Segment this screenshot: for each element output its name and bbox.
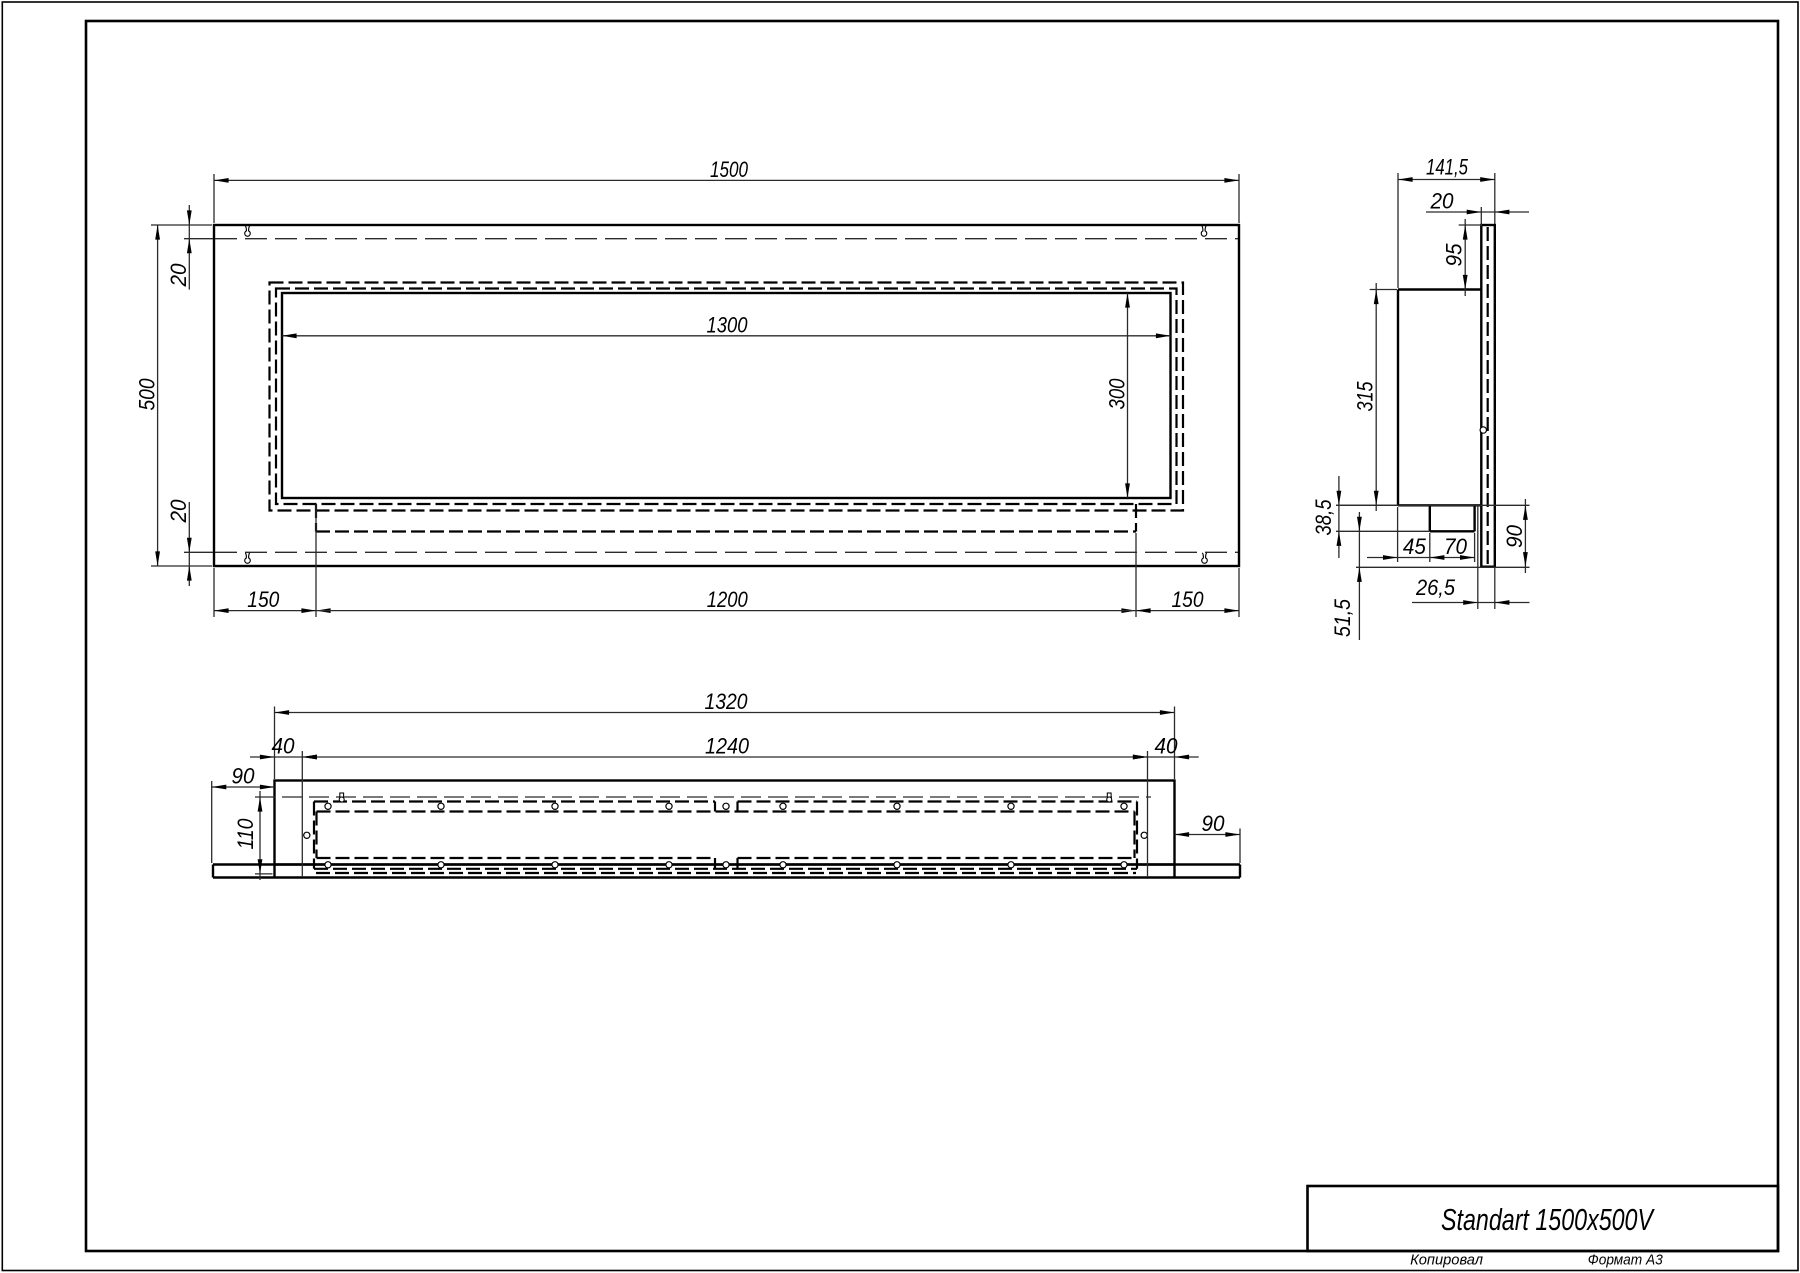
svg-text:1200: 1200 (707, 587, 749, 612)
svg-text:38,5: 38,5 (1311, 499, 1336, 536)
svg-text:Формат А3: Формат А3 (1588, 1253, 1663, 1269)
svg-text:150: 150 (1172, 587, 1205, 612)
svg-text:500: 500 (134, 378, 159, 411)
svg-text:141,5: 141,5 (1426, 155, 1469, 180)
svg-text:110: 110 (233, 818, 258, 850)
svg-text:45: 45 (1403, 534, 1427, 559)
svg-text:Копировал: Копировал (1410, 1253, 1483, 1269)
svg-text:95: 95 (1442, 243, 1467, 267)
svg-text:1500: 1500 (710, 157, 749, 182)
svg-text:70: 70 (1444, 534, 1468, 559)
svg-text:1320: 1320 (705, 689, 749, 714)
svg-text:20: 20 (1430, 189, 1455, 214)
svg-text:40: 40 (272, 734, 296, 759)
svg-text:Standart 1500x500V: Standart 1500x500V (1441, 1202, 1655, 1237)
svg-text:26,5: 26,5 (1415, 575, 1456, 600)
svg-text:51,5: 51,5 (1330, 598, 1355, 637)
svg-text:90: 90 (232, 764, 256, 789)
svg-text:20: 20 (166, 263, 191, 288)
svg-text:150: 150 (247, 587, 280, 612)
svg-text:90: 90 (1502, 524, 1527, 548)
svg-text:40: 40 (1155, 734, 1179, 759)
svg-text:1240: 1240 (705, 734, 750, 759)
svg-text:300: 300 (1104, 378, 1129, 410)
svg-text:20: 20 (166, 499, 191, 524)
svg-text:90: 90 (1202, 811, 1226, 836)
svg-text:315: 315 (1353, 381, 1378, 412)
svg-text:1300: 1300 (707, 312, 749, 337)
